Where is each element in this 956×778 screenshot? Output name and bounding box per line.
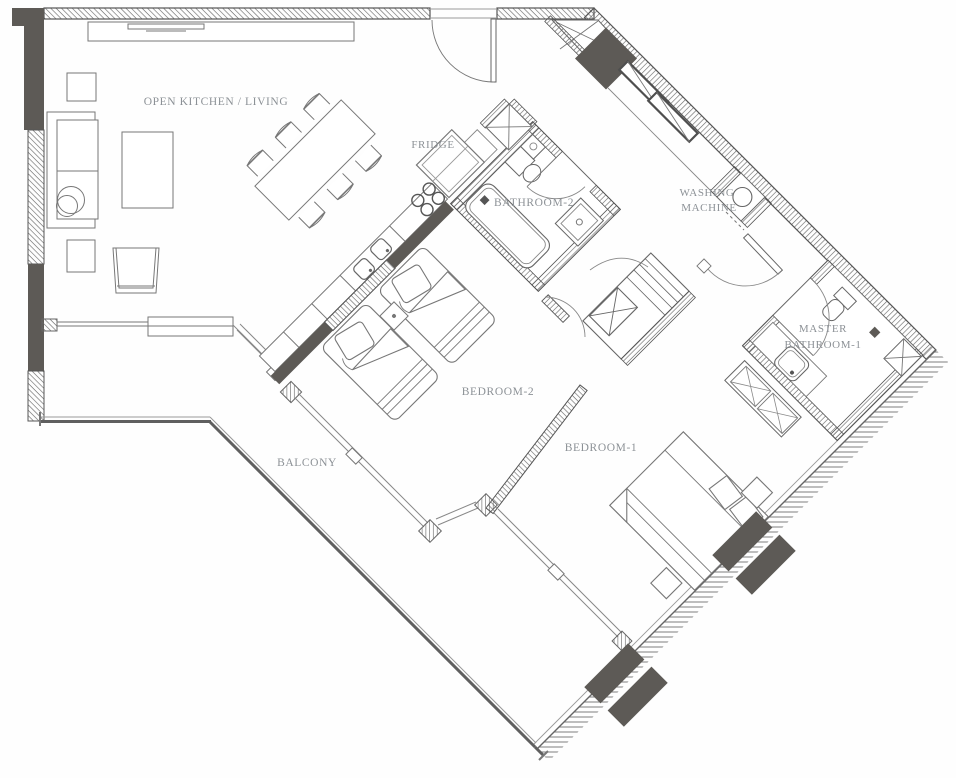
svg-text:BATHROOM-1: BATHROOM-1 [785,339,862,351]
svg-text:MASTER: MASTER [799,323,847,335]
svg-text:WASHING: WASHING [680,187,735,199]
svg-text:OPEN KITCHEN / LIVING: OPEN KITCHEN / LIVING [144,96,289,108]
svg-text:BEDROOM-1: BEDROOM-1 [565,442,638,454]
svg-text:MACHINE: MACHINE [681,202,737,214]
svg-text:BATHROOM-2: BATHROOM-2 [494,197,574,209]
svg-text:FRIDGE: FRIDGE [411,139,454,151]
svg-text:BALCONY: BALCONY [277,457,337,469]
svg-text:BEDROOM-2: BEDROOM-2 [462,386,535,398]
